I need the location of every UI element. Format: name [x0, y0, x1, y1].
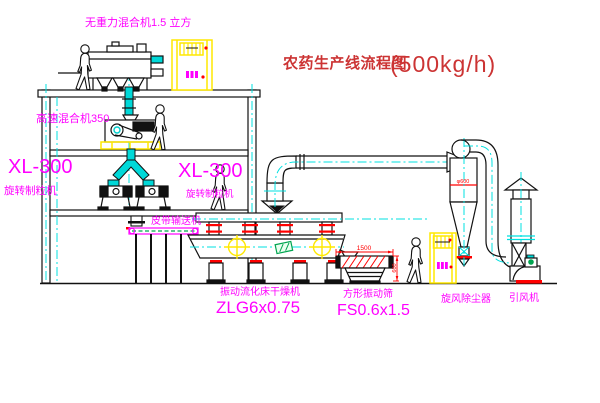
gravity-mixer: [58, 42, 163, 115]
drawing-title: 农药生产线流程图: [282, 54, 407, 72]
granulator-right: [134, 186, 170, 210]
process-flow-drawing: 农药生产线流程图 (500kg/h) 无重力混合机1.5 立方 高速混合机350…: [0, 0, 600, 403]
dryer-name-label: 振动流化床干燥机: [220, 285, 300, 298]
fluid-bed-dryer: [188, 213, 352, 283]
fan-label: 引风机: [509, 291, 539, 304]
control-cabinet-top: [172, 40, 212, 90]
induced-draft-fan: [510, 243, 542, 284]
granulator-right-model: XL-300: [178, 160, 243, 182]
dryer-model-label: ZLG6x0.75: [216, 298, 300, 317]
control-cabinet-right: [430, 233, 456, 283]
cyclone-diameter-dim: φ600: [457, 179, 470, 185]
screen-length-dim: 1500: [357, 245, 372, 252]
screen-model-label: FS0.6x1.5: [337, 302, 410, 319]
screen-height-dim: 600: [392, 263, 398, 272]
granulator-left-model: XL-300: [8, 156, 73, 178]
cad-diagram: 农药生产线流程图 (500kg/h) 无重力混合机1.5 立方 高速混合机350…: [0, 0, 600, 403]
drawing-title-capacity: (500kg/h): [390, 51, 496, 77]
granulator-right-name: 旋转制粒机: [186, 188, 234, 200]
gravity-mixer-label: 无重力混合机1.5 立方: [85, 15, 191, 29]
granulator-left: [98, 186, 134, 210]
belt-conveyor-label: 皮带输送机: [151, 214, 201, 227]
high-speed-mixer-label: 高速混合机350: [36, 111, 109, 125]
vibrating-screen: [336, 249, 399, 284]
screen-name-label: 方形振动筛: [343, 287, 393, 300]
cyclone-label: 旋风除尘器: [441, 292, 491, 305]
y-feed-pipe: [108, 160, 154, 186]
worker-figure-4: [407, 238, 422, 283]
granulator-left-name: 旋转制粒机: [4, 184, 57, 197]
